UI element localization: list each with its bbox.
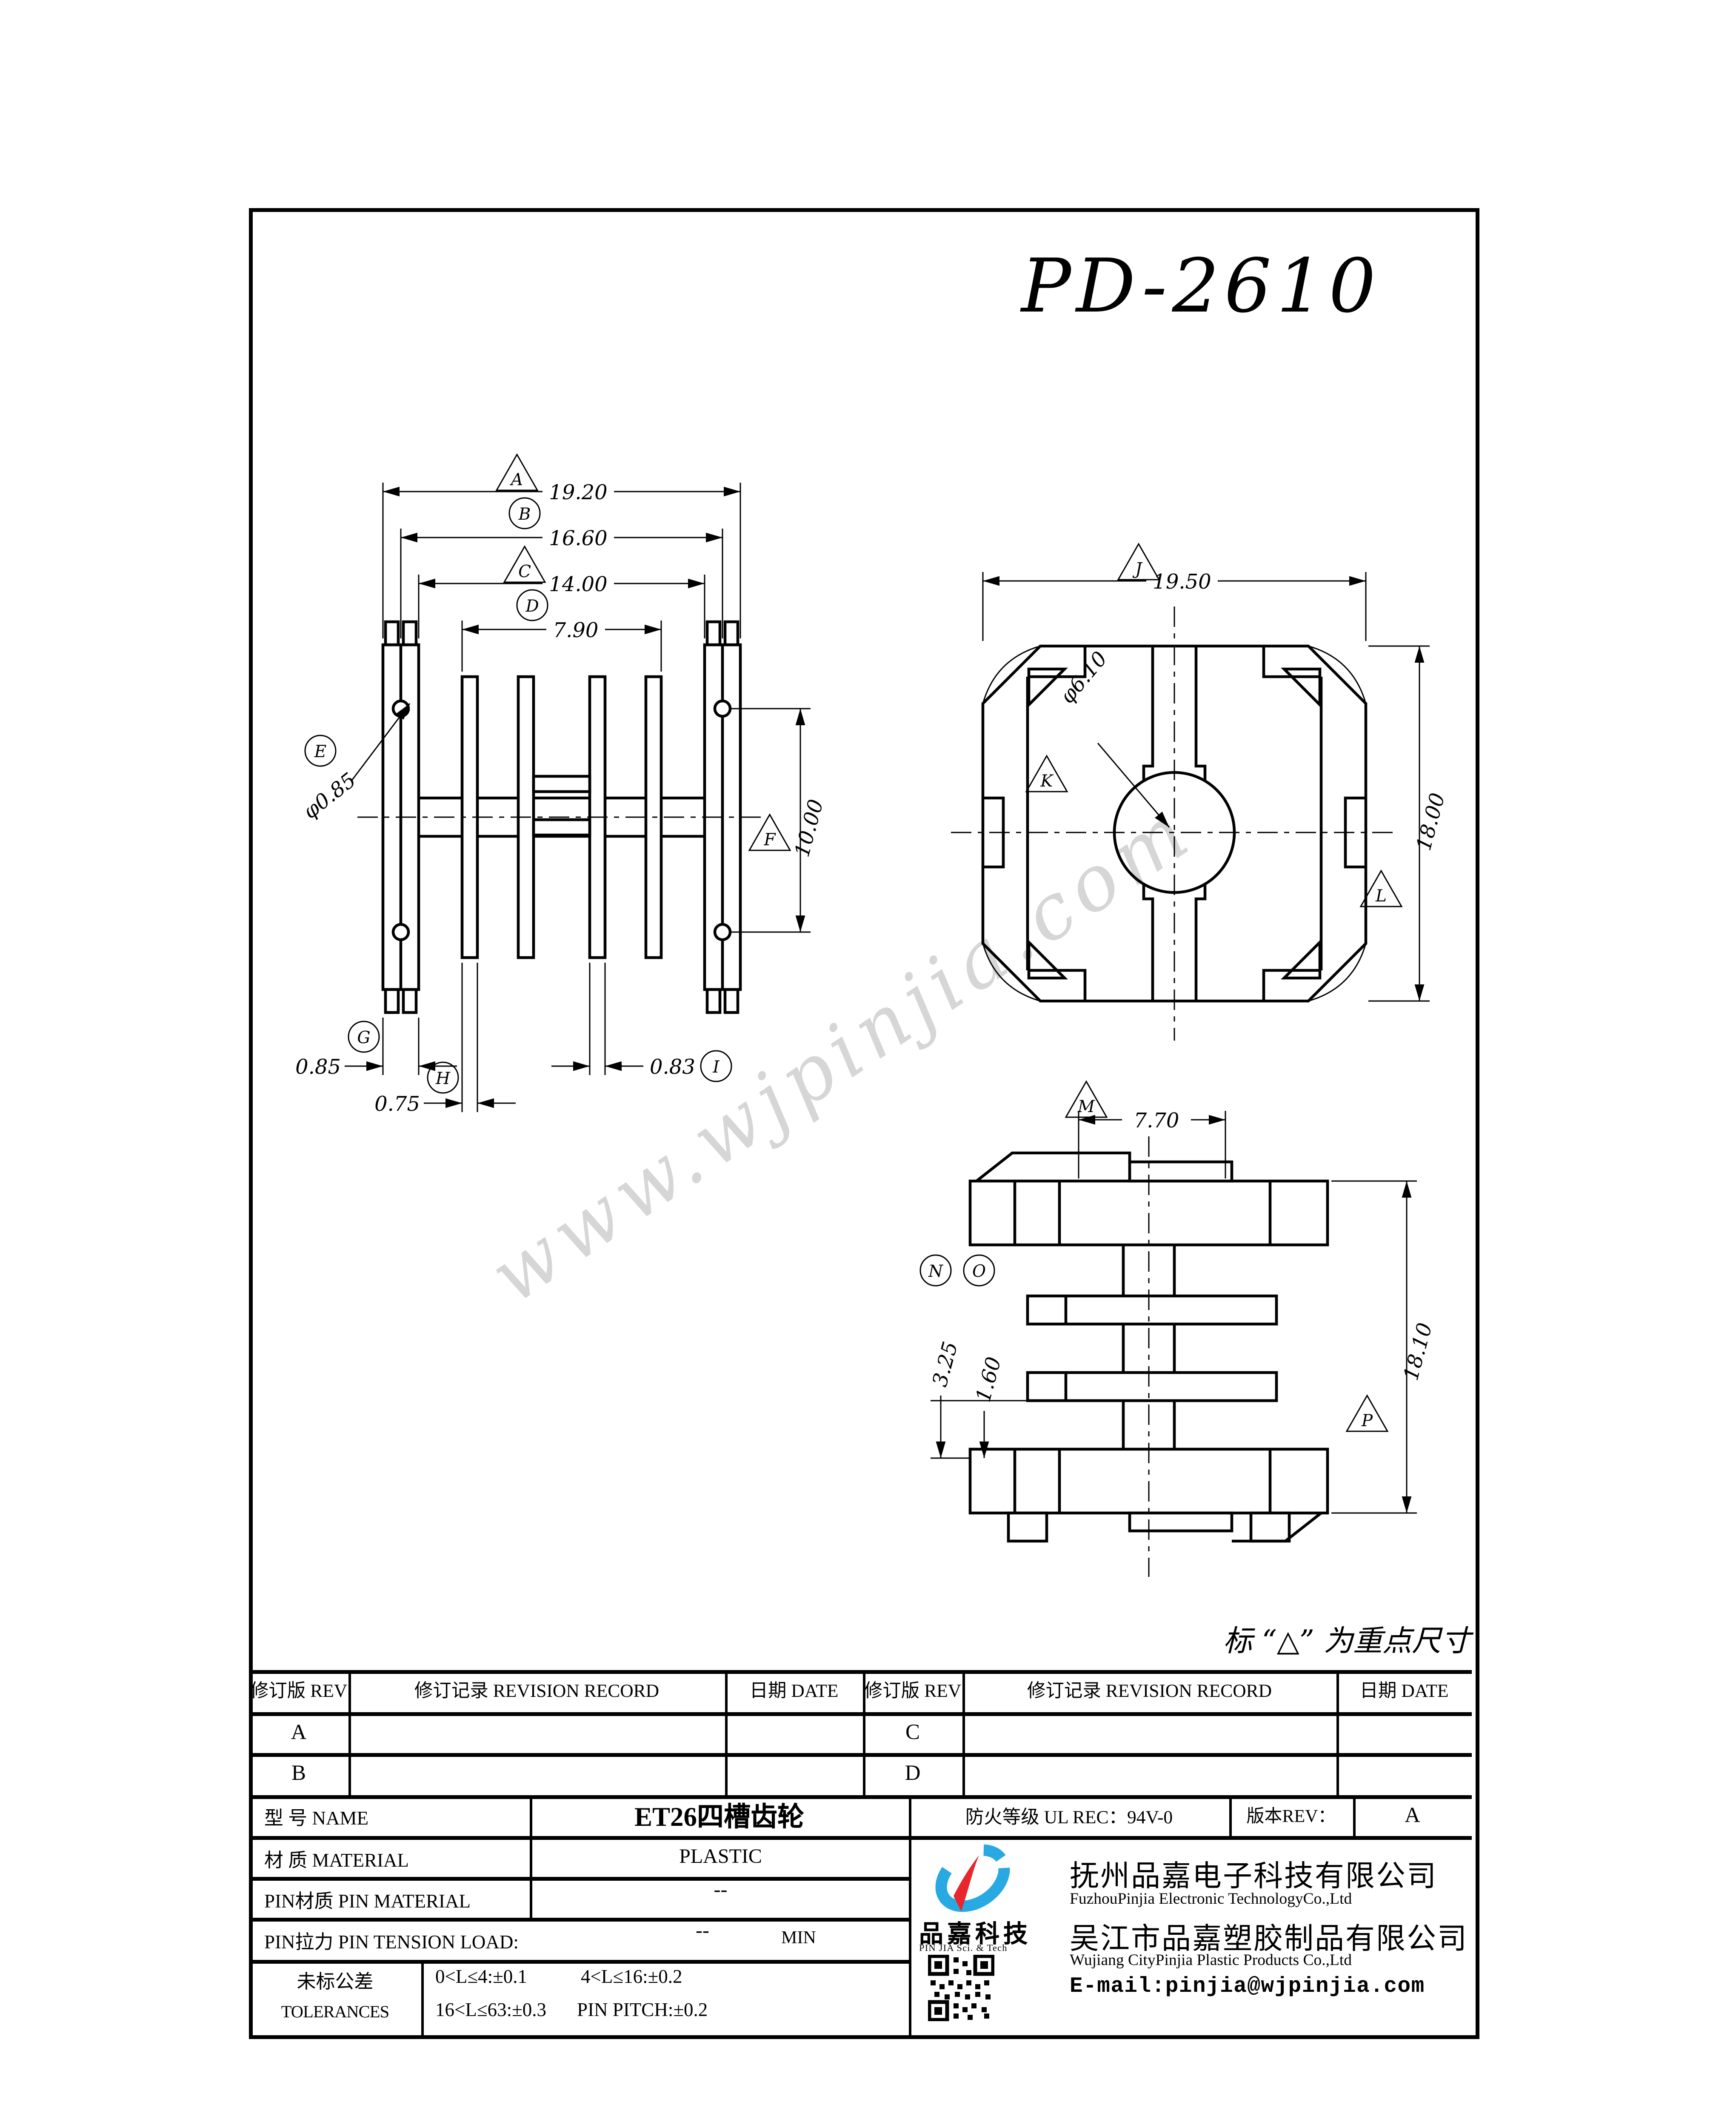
dim-c-value: 14.00 [549, 572, 607, 596]
dim-f-letter: F [763, 830, 776, 849]
dim-l-value: 18.00 [1412, 790, 1450, 853]
dim-n-value: 3.25 [928, 1339, 962, 1389]
rev-header-left: 修订版 REV [249, 1673, 348, 1711]
dim-n-letter: N [928, 1262, 944, 1281]
table-line [249, 1836, 1472, 1840]
tolerance-l1a: 0<L≤4:±0.1 [435, 1968, 527, 1989]
dim-j-value: 19.50 [1153, 570, 1211, 594]
rev-header-right: 修订版 REV [863, 1673, 962, 1711]
dim-b-letter: B [518, 505, 531, 524]
dim-l-letter: L [1375, 887, 1387, 906]
dim-k-letter: K [1040, 772, 1054, 791]
top-view-drawing: J 19.50 φ6.10 K L 18.00 [919, 536, 1481, 1098]
tolerance-l1b: 4<L≤16:±0.2 [581, 1968, 682, 1989]
dim-f-value: 10.00 [790, 797, 828, 859]
rev-row-d: D [863, 1756, 962, 1791]
company-name-en-2: Wujiang CityPinjia Plastic Products Co.,… [1070, 1951, 1352, 1970]
dim-o-value: 1.60 [971, 1354, 1006, 1404]
dim-i-letter: I [712, 1058, 720, 1077]
dim-e-value: φ0.85 [299, 768, 360, 824]
dim-g-letter: G [357, 1028, 370, 1047]
dim-c-letter: C [518, 562, 531, 581]
table-line [249, 1753, 1472, 1757]
top-dimensions: J 19.50 φ6.10 K L 18.00 [983, 544, 1450, 1001]
version-value: A [1353, 1798, 1472, 1833]
front-view-drawing: A 19.20 B 16.60 C 14.00 D 7.90 E [287, 447, 836, 1124]
dim-h-value: 0.75 [374, 1092, 420, 1116]
dim-e-letter: E [314, 742, 326, 761]
dim-j-letter: J [1132, 560, 1143, 579]
dim-m-letter: M [1077, 1097, 1095, 1116]
dim-m-value: 7.70 [1134, 1109, 1179, 1133]
date-header-left: 日期 DATE [725, 1673, 863, 1711]
pin-tension-value: -- [696, 1920, 709, 1943]
tolerance-label-en: TOLERANCES [249, 1999, 421, 2025]
record-header-right: 修订记录 REVISION RECORD [962, 1673, 1336, 1711]
material-label: 材 质 MATERIAL [264, 1846, 409, 1873]
company-logo [922, 1842, 1024, 1914]
dim-h-letter: H [435, 1069, 451, 1088]
name-label: 型 号 NAME [264, 1804, 368, 1831]
side-part-outline [970, 1136, 1328, 1577]
tolerance-label-cn: 未标公差 [249, 1968, 421, 1993]
top-part-outline [951, 606, 1398, 1041]
pin-material-value: -- [532, 1878, 909, 1904]
rev-row-a: A [249, 1715, 348, 1750]
pin-tension-label: PIN拉力 PIN TENSION LOAD: [264, 1928, 519, 1955]
drawing-sheet: PD-2610 www.wjpinjia.com [0, 0, 1736, 2128]
dim-b-value: 16.60 [549, 526, 607, 550]
version-label: 版本REV： [1229, 1798, 1353, 1833]
dim-p-value: 18.10 [1399, 1320, 1437, 1383]
dim-g-value: 0.85 [295, 1055, 341, 1079]
table-line [421, 1960, 423, 2036]
dim-o-letter: O [972, 1262, 986, 1281]
front-part-outline [357, 622, 766, 1013]
dim-a-value: 19.20 [549, 481, 607, 504]
part-number-title: PD-2610 [1021, 243, 1381, 329]
tolerance-l2b: PIN PITCH:±0.2 [577, 2001, 708, 2022]
qr-code [928, 1955, 994, 2021]
dim-d-letter: D [525, 597, 539, 616]
pin-material-label: PIN材质 PIN MATERIAL [264, 1887, 471, 1914]
company-email: E-mail:pinjia@wjpinjia.com [1070, 1975, 1425, 1999]
dim-a-letter: A [510, 470, 523, 489]
side-view-drawing: M 7.70 N O 3.25 1.60 P 18.10 [836, 1066, 1474, 1615]
company-name-cn-1: 抚州品嘉电子科技有限公司 [1070, 1851, 1437, 1895]
table-line [249, 1960, 910, 1964]
record-header-left: 修订记录 REVISION RECORD [348, 1673, 725, 1711]
tolerance-line2: 16<L≤63:±0.3 PIN PITCH:±0.2 [435, 2001, 708, 2022]
dim-i-value: 0.83 [650, 1055, 695, 1079]
material-value: PLASTIC [532, 1840, 909, 1876]
table-line [249, 1918, 910, 1922]
brand-subtitle: PIN JIA Sci. & Tech [919, 1942, 1008, 1954]
important-dimension-note: 标 “△” 为重点尺寸 [1155, 1616, 1470, 1660]
name-value: ET26四槽齿轮 [530, 1798, 909, 1833]
rev-row-c: C [863, 1715, 962, 1750]
company-name-en-1: FuzhouPinjia Electronic TechnologyCo.,Lt… [1070, 1890, 1352, 1909]
rev-row-b: B [249, 1756, 348, 1791]
tolerance-l2a: 16<L≤63:±0.3 [435, 2001, 546, 2022]
fire-rating-label: 防火等级 UL REC：94V-0 [909, 1798, 1229, 1833]
date-header-right: 日期 DATE [1336, 1673, 1472, 1711]
tolerance-line1: 0<L≤4:±0.1 4<L≤16:±0.2 [435, 1968, 682, 1989]
dim-p-letter: P [1361, 1411, 1373, 1430]
pin-tension-suffix: MIN [781, 1929, 816, 1950]
dim-d-value: 7.90 [553, 618, 599, 642]
table-line [249, 1712, 1472, 1716]
